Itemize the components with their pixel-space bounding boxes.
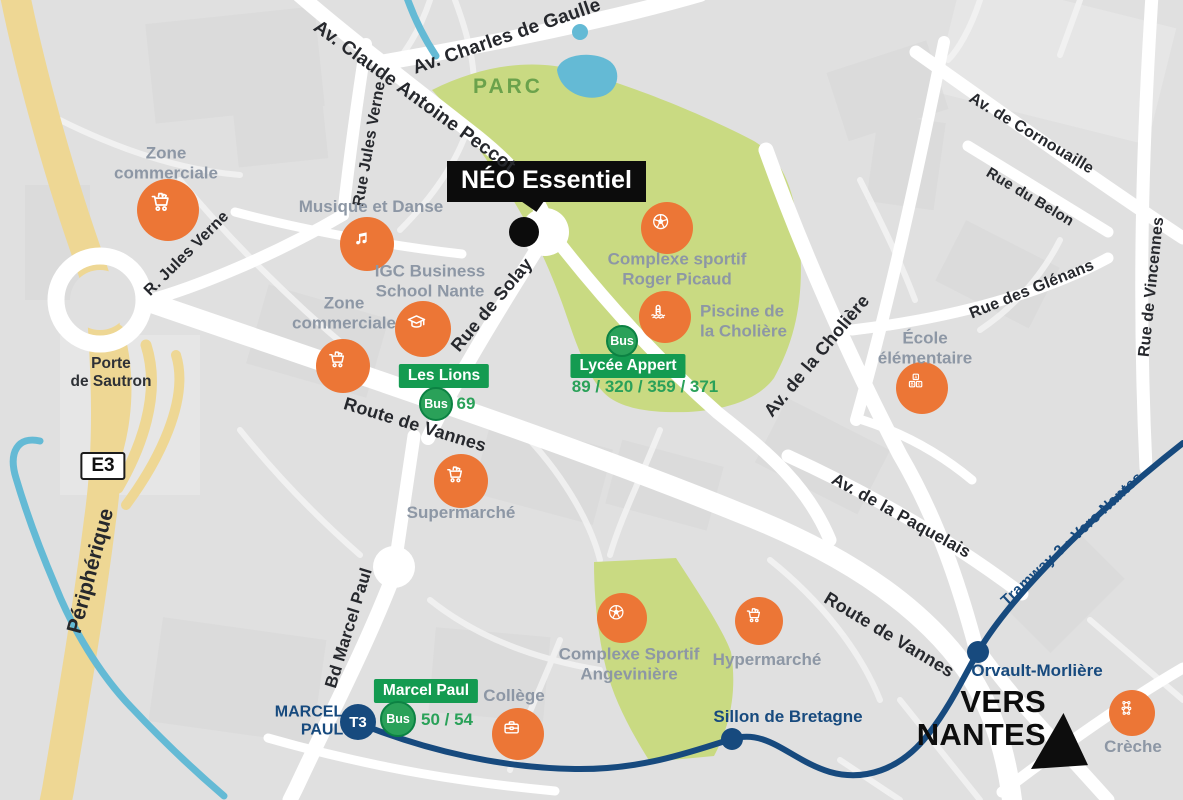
tram-stop-sillon-de-bretagne-dot	[721, 728, 743, 750]
svg-text:B: B	[911, 382, 914, 387]
cart-icon	[148, 190, 188, 230]
teddy-icon	[1117, 698, 1146, 727]
poi-supermarche-marker	[434, 454, 488, 508]
bus-icon: Bus	[606, 325, 638, 357]
street-label-route-de-vannes: Route de Vannes	[820, 588, 958, 682]
project-marker-label: NÉO Essentiel	[447, 161, 646, 202]
cart-icon	[444, 464, 479, 499]
music-icon	[350, 227, 385, 262]
poi-complexe-sportif-angeviniere-label: Complexe Sportif Angevinière	[559, 644, 700, 683]
poi-zone-commerciale-label: Zone commerciale	[114, 143, 218, 182]
bus-stop-les-lions-lines: 69	[457, 394, 476, 414]
map-canvas: PARC E3 Porte de Sautron Périphérique VE…	[0, 0, 1183, 800]
poi-zone-commerciale-label: Zone commerciale	[292, 293, 396, 332]
bus-stop-les-lions-badge: Les Lions	[399, 364, 489, 388]
street-label-rue-jules-verne: Rue Jules Verne	[350, 80, 390, 208]
poi-ecole-elementaire-marker: ABC	[896, 362, 948, 414]
street-label-bd-marcel-paul: Bd Marcel Paul	[321, 565, 377, 690]
park-label: PARC	[473, 75, 543, 99]
e3-route-badge: E3	[80, 452, 125, 480]
map-overlay: PARC E3 Porte de Sautron Périphérique VE…	[0, 0, 1183, 800]
street-label-av-de-la-paquelais: Av. de la Paquelais	[828, 469, 974, 562]
poi-piscine-de-la-choliere-marker	[639, 291, 691, 343]
tram-terminus-label: MARCEL PAUL	[275, 703, 343, 738]
cart-icon	[744, 606, 775, 637]
poi-igc-business-school-nante-marker	[395, 301, 451, 357]
svg-text:A: A	[915, 375, 918, 380]
porte-de-sautron-label: Porte de Sautron	[71, 355, 152, 391]
soccer-icon	[606, 602, 638, 634]
poi-college-marker	[492, 708, 544, 760]
abc-icon: ABC	[905, 371, 938, 404]
bus-stop-marcel-paul-badge: Marcel Paul	[374, 679, 478, 703]
project-marker-dot	[509, 217, 539, 247]
poi-supermarche-label: Supermarché	[407, 503, 516, 523]
poi-creche-marker	[1109, 690, 1155, 736]
tramway-line-label: Tramway 3 › Vers Nantes	[998, 469, 1147, 609]
soccer-icon	[650, 211, 683, 244]
poi-complexe-sportif-roger-picaud-label: Complexe sportif Roger Picaud	[608, 249, 747, 288]
cart-icon	[326, 349, 361, 384]
poi-college-label: Collège	[483, 686, 544, 706]
briefcase-icon	[501, 717, 534, 750]
poi-complexe-sportif-angeviniere-marker	[597, 593, 647, 643]
poi-ecole-elementaire-label: École élémentaire	[878, 328, 973, 367]
tram-stop-orvault-morliere-label: Orvault-Morlière	[971, 661, 1102, 681]
graduation-icon	[405, 311, 441, 347]
pool-icon	[648, 300, 681, 333]
poi-creche-label: Crèche	[1104, 737, 1162, 757]
street-label-av-charles-de-gaulle: Av. Charles de Gaulle	[410, 0, 604, 80]
poi-hypermarche-marker	[735, 597, 783, 645]
poi-zone-commerciale-marker	[316, 339, 370, 393]
tram-t3-badge: T3	[340, 704, 376, 740]
street-label-av-de-cornouaille: Av. de Cornouaille	[965, 90, 1096, 179]
bus-stop-lycee-appert-badge: Lycée Appert	[570, 354, 685, 378]
vers-nantes-label: VERS NANTES	[917, 686, 1046, 752]
street-label-rue-de-vincennes: Rue de Vincennes	[1136, 216, 1169, 358]
poi-complexe-sportif-roger-picaud-marker	[641, 202, 693, 254]
peripherique-label: Périphérique	[63, 506, 119, 636]
street-label-rue-du-belon: Rue du Belon	[983, 164, 1077, 230]
bus-icon: Bus	[419, 387, 453, 421]
svg-text:C: C	[918, 382, 921, 387]
poi-hypermarche-label: Hypermarché	[713, 650, 822, 670]
tram-stop-sillon-de-bretagne-label: Sillon de Bretagne	[713, 707, 862, 727]
poi-piscine-de-la-choliere-label: Piscine de la Cholière	[700, 301, 787, 340]
bus-stop-lycee-appert-lines: 89 / 320 / 359 / 371	[572, 377, 719, 397]
bus-icon: Bus	[380, 701, 416, 737]
bus-stop-marcel-paul-lines: 50 / 54	[421, 710, 473, 730]
poi-musique-et-danse-label: Musique et Danse	[299, 197, 444, 217]
poi-zone-commerciale-marker	[137, 179, 199, 241]
street-label-rue-des-glenans: Rue des Glénans	[967, 257, 1097, 323]
tram-stop-orvault-morliere-dot	[967, 641, 989, 663]
